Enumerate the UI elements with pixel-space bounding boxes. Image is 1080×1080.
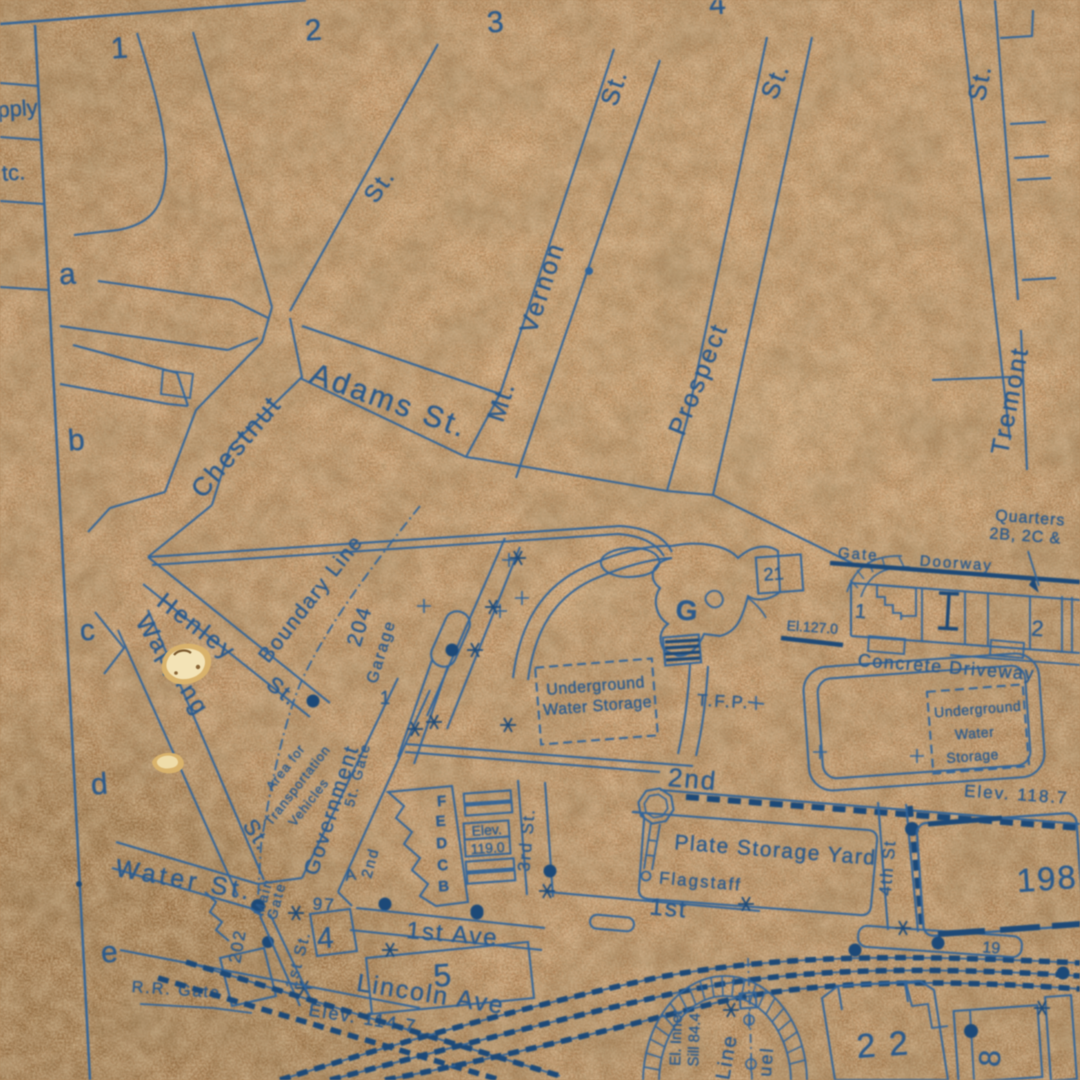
- svg-text:Gate: Gate: [838, 545, 880, 565]
- svg-text:8: 8: [973, 1047, 1007, 1068]
- svg-text:1st: 1st: [649, 893, 689, 923]
- svg-text:4: 4: [708, 0, 729, 22]
- svg-text:Elev.: Elev.: [471, 821, 502, 839]
- svg-text:1: 1: [110, 31, 131, 65]
- svg-text:c: c: [79, 613, 98, 647]
- svg-text:F: F: [437, 793, 449, 811]
- svg-text:A: A: [344, 866, 359, 885]
- svg-text:B: B: [438, 878, 452, 896]
- svg-text:C: C: [437, 857, 451, 875]
- svg-text:El. Inner: El. Inner: [667, 1010, 686, 1066]
- svg-text:T.F.P.: T.F.P.: [697, 691, 750, 713]
- svg-text:G: G: [675, 594, 701, 627]
- svg-text:Sill 84.4: Sill 84.4: [685, 1013, 704, 1067]
- svg-text:1: 1: [854, 601, 869, 624]
- svg-text:tc.: tc.: [1, 159, 26, 186]
- svg-text:Water: Water: [954, 723, 994, 742]
- svg-text:21: 21: [763, 563, 784, 584]
- svg-text:E: E: [435, 813, 448, 831]
- svg-text:D: D: [436, 835, 450, 853]
- svg-text:2: 2: [1031, 616, 1047, 642]
- svg-text:3: 3: [486, 5, 507, 39]
- svg-text:e: e: [100, 935, 121, 969]
- svg-text:198: 198: [1015, 858, 1078, 899]
- svg-text:1: 1: [380, 688, 390, 708]
- svg-text:a: a: [58, 257, 79, 291]
- svg-text:19: 19: [982, 939, 1001, 957]
- svg-text:uel: uel: [755, 1046, 778, 1078]
- svg-text:b: b: [67, 423, 88, 457]
- svg-text:2: 2: [304, 13, 325, 47]
- svg-text:2 2: 2 2: [855, 1024, 911, 1066]
- svg-text:4: 4: [316, 921, 337, 955]
- svg-text:d: d: [90, 767, 111, 801]
- svg-text:pply: pply: [0, 95, 38, 123]
- svg-text:119.0: 119.0: [470, 839, 505, 857]
